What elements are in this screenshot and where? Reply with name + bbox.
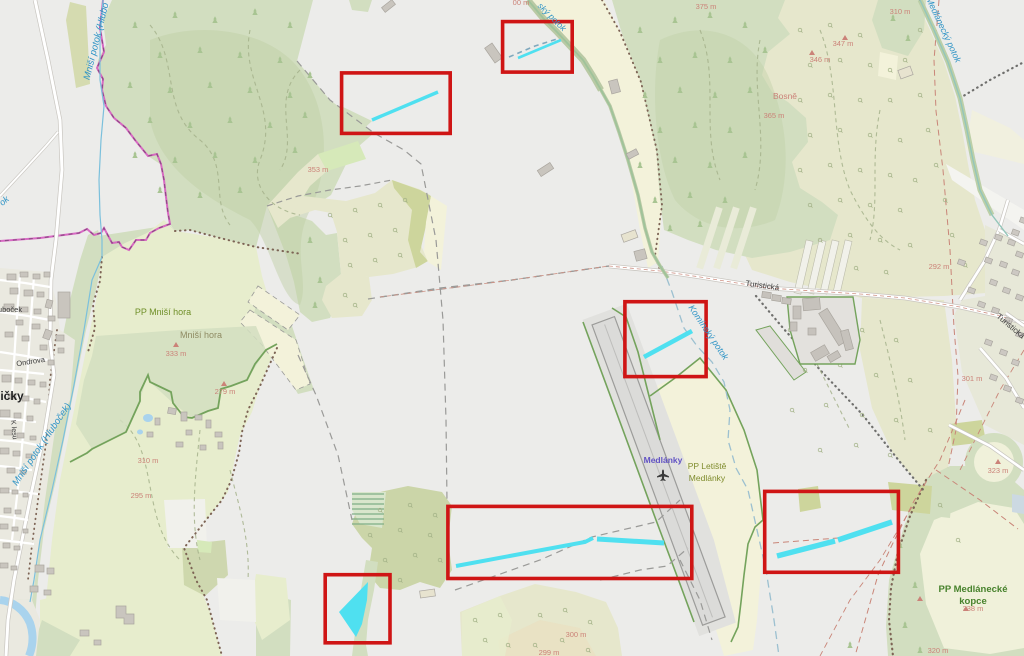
svg-text:300 m: 300 m	[566, 630, 587, 639]
svg-text:PP Mniší hora: PP Mniší hora	[135, 307, 191, 317]
svg-text:Bosně: Bosně	[773, 91, 797, 101]
svg-text:353 m: 353 m	[308, 165, 329, 174]
svg-text:320 m: 320 m	[928, 646, 949, 655]
svg-text:292 m: 292 m	[929, 262, 950, 271]
svg-text:299 m: 299 m	[539, 648, 560, 656]
svg-text:310 m: 310 m	[890, 7, 911, 16]
svg-text:uboček: uboček	[0, 305, 22, 314]
svg-text:301 m: 301 m	[962, 374, 983, 383]
svg-text:00 m: 00 m	[513, 0, 530, 7]
svg-text:Medlánky: Medlánky	[644, 455, 683, 465]
svg-text:333 m: 333 m	[166, 349, 187, 358]
svg-text:Medlánky: Medlánky	[689, 473, 726, 483]
svg-text:295 m: 295 m	[131, 491, 152, 500]
svg-text:PP Letiště: PP Letiště	[688, 461, 727, 471]
svg-text:279 m: 279 m	[215, 387, 236, 396]
svg-text:323 m: 323 m	[988, 466, 1009, 475]
svg-text:347 m: 347 m	[833, 39, 854, 48]
svg-text:365 m: 365 m	[764, 111, 785, 120]
svg-text:ičky: ičky	[0, 389, 24, 403]
svg-text:346 m: 346 m	[810, 55, 831, 64]
svg-text:310 m: 310 m	[138, 456, 159, 465]
svg-text:Mniší hora: Mniší hora	[180, 330, 222, 340]
svg-text:PP Medlánecké: PP Medlánecké	[938, 584, 1007, 595]
svg-text:375 m: 375 m	[696, 2, 717, 11]
